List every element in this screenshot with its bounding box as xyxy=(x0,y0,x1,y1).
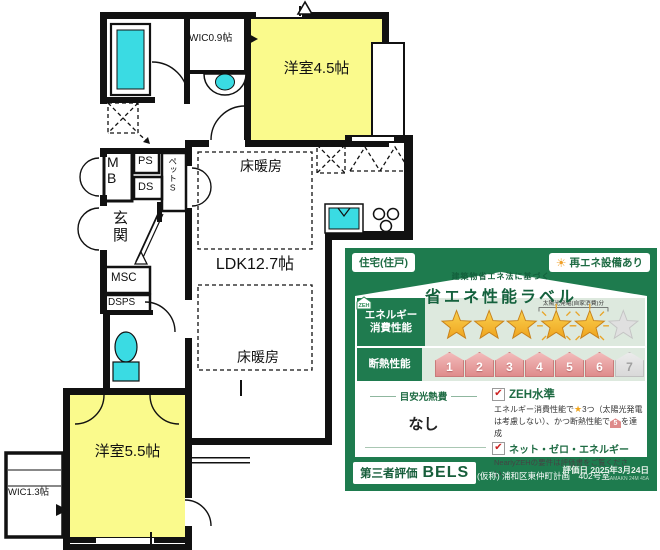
solar-bracket xyxy=(539,308,608,312)
label-genkan: 玄関 xyxy=(113,210,130,245)
label-pet-storage: ペットS xyxy=(167,157,177,211)
bels-brand: BELS xyxy=(423,464,470,482)
renewable-badge: ☀ 再エネ設備あり xyxy=(549,253,650,272)
netzero-checkbox-icon: ✔ xyxy=(492,442,505,455)
label-wic13: WIC1.3帖 xyxy=(8,488,49,499)
inline-star-icon: ★ xyxy=(574,404,582,414)
stove-icon xyxy=(374,209,399,232)
label-subtitle: 建築物省エネ法に基づく xyxy=(345,271,657,282)
insulation-level-5: 5 xyxy=(555,352,584,377)
insulation-level-1: 1 xyxy=(435,352,464,377)
star-gold-3 xyxy=(507,311,536,339)
label-heating-upper: 床暖房 xyxy=(240,158,282,174)
star-gray xyxy=(609,311,638,339)
insulation-level-6: 6 xyxy=(585,352,614,377)
washbasin-icon xyxy=(204,74,246,95)
label-mb: MB xyxy=(107,154,123,186)
label-title: 省エネ性能ラベル xyxy=(345,283,657,307)
dashed-arrowhead xyxy=(143,137,150,144)
zeh-description: エネルギー消費性能で★3つ（太陽光発電 は考慮しない）、かつ断熱性能で5を達成 xyxy=(494,403,643,440)
insulation-level-7: 7 xyxy=(615,352,644,377)
insulation-scale: 1 2 3 4 5 6 7 xyxy=(422,348,645,381)
evaluation-code: SAMAKN 24M 45A xyxy=(606,476,649,482)
label-footer: 第三者評価 BELS (仮称) 浦和区東仲町計画 402号室 評価日 2025年… xyxy=(345,457,657,491)
energy-row-label-line2: 消費性能 xyxy=(370,322,412,335)
label-ps: PS xyxy=(138,155,153,168)
energy-row-label-line1: エネルギー xyxy=(365,309,418,322)
label-dsps: DSPS xyxy=(108,297,135,309)
inline-house5-icon: 5 xyxy=(610,418,621,428)
bathtub-icon xyxy=(111,24,150,95)
insulation-level-2: 2 xyxy=(465,352,494,377)
balcony-outline xyxy=(372,43,404,136)
divider-lines xyxy=(192,457,250,464)
renewable-text: 再エネ設備あり xyxy=(570,255,644,270)
label-room55: 洋室5.5帖 xyxy=(70,443,185,460)
cost-column: 目安光熱費 なし xyxy=(357,384,490,450)
label-ldk: LDK12.7帖 xyxy=(195,256,315,274)
star-solar-1 xyxy=(537,304,575,340)
zeh-level-label: ZEH水準 xyxy=(509,386,555,402)
evaluation-date: 評価日 2025年3月24日 xyxy=(563,464,649,476)
label-card: エネルギー 消費性能 太陽光発電(自家消費)分 xyxy=(355,296,647,457)
label-titles: 建築物省エネ法に基づく 省エネ性能ラベル xyxy=(345,271,657,307)
sun-icon: ☀ xyxy=(556,257,567,269)
cost-title: 目安光熱費 xyxy=(370,389,478,403)
screenshot: WIC0.9帖 洋室4.5帖 床暖房 LDK12.7帖 床暖房 MB PS DS… xyxy=(0,0,660,550)
energy-label-panel: 住宅(住戸) ☀ 再エネ設備あり 建築物省エネ法に基づく 省エネ性能ラベル エネ… xyxy=(345,248,657,491)
unit-type-badge: 住宅(住戸) xyxy=(352,253,415,272)
zeh-checkbox-icon: ✔ xyxy=(492,388,505,401)
zeh-column: ✔ ZEH水準 エネルギー消費性能で★3つ（太陽光発電 は考慮しない）、かつ断熱… xyxy=(490,384,645,450)
cert-label: 第三者評価 xyxy=(360,465,418,481)
cost-value: なし xyxy=(408,413,438,434)
label-ds: DS xyxy=(138,181,153,194)
label-msc: MSC xyxy=(111,272,137,285)
unit-type-text: 住宅(住戸) xyxy=(359,255,408,270)
insulation-level-3: 3 xyxy=(495,352,524,377)
bels-cert-box: 第三者評価 BELS xyxy=(353,462,476,484)
netzero-label: ネット・ゼロ・エネルギー xyxy=(509,441,629,456)
cost-divider xyxy=(365,447,486,448)
star-gold-1 xyxy=(442,311,471,339)
insulation-row: 断熱性能 1 2 3 4 5 6 7 xyxy=(357,348,645,381)
label-heating-lower: 床暖房 xyxy=(237,349,279,365)
label-room45: 洋室4.5帖 xyxy=(251,60,382,77)
star-solar-2 xyxy=(571,304,609,340)
insulation-row-label: 断熱性能 xyxy=(357,348,422,381)
wic-shelf-lines xyxy=(8,470,61,486)
label-bottom-section: 目安光熱費 なし ✔ ZEH水準 エネルギー消費性能で★3つ（太陽光発電 は考慮… xyxy=(357,384,645,450)
kitchen-sink-icon xyxy=(325,204,363,233)
star-gold-2 xyxy=(475,311,504,339)
insulation-label-text: 断熱性能 xyxy=(369,358,411,371)
label-wic09: WIC0.9帖 xyxy=(189,33,232,45)
toilet-icon xyxy=(113,332,139,381)
insulation-level-4: 4 xyxy=(525,352,554,377)
